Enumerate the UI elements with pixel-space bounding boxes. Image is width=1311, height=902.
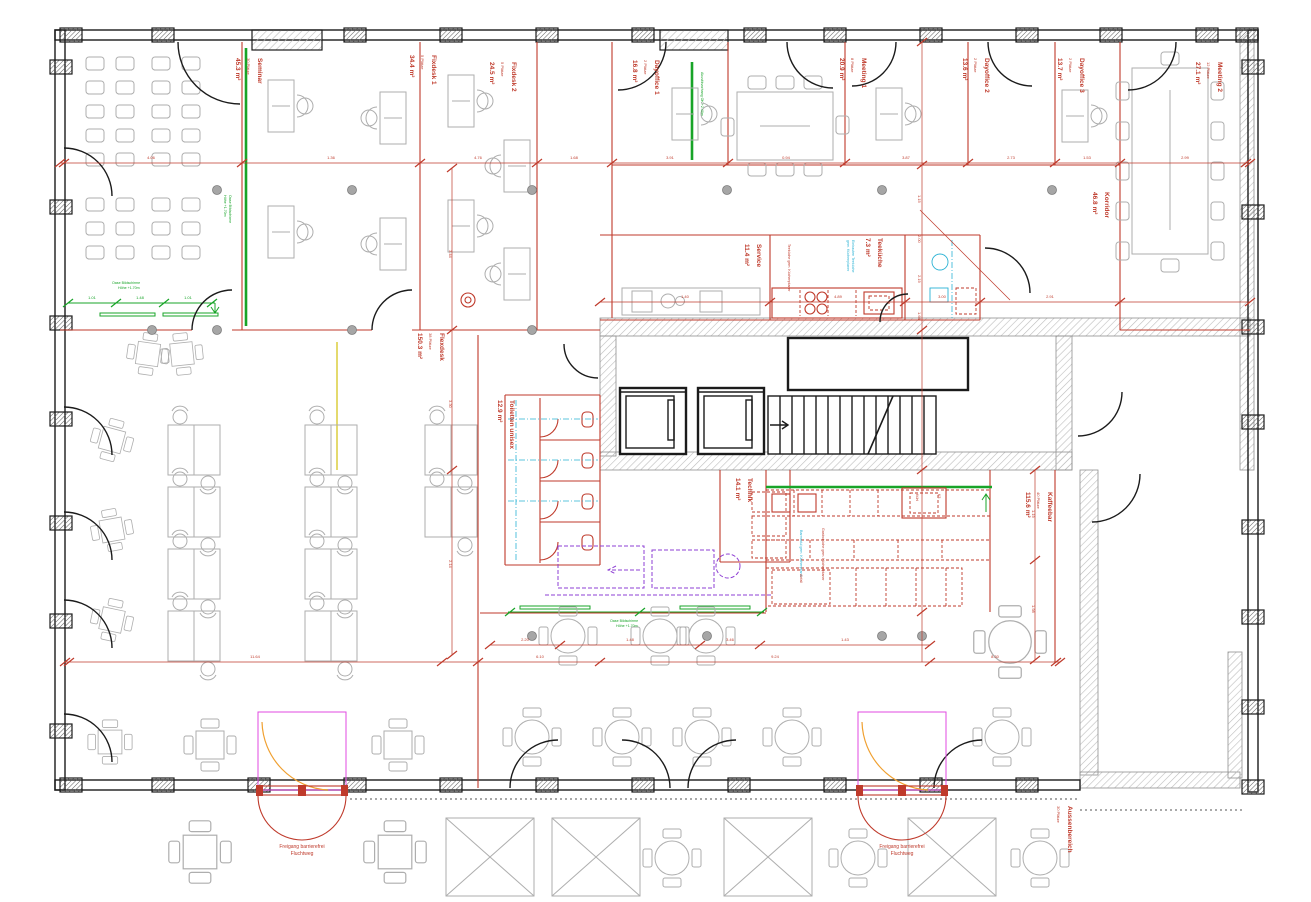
dim: 1.19 xyxy=(1031,510,1036,519)
room-area-dayoffice1: 16.8 m² xyxy=(631,60,638,83)
elevator-1 xyxy=(620,388,686,454)
core xyxy=(620,338,968,454)
room-label-technik: Technik xyxy=(746,478,753,502)
room-capacity-seminar: 30 Plätze xyxy=(246,58,251,75)
outdoor-furniture xyxy=(169,818,1069,896)
room-label-teekueche: Teeküche xyxy=(876,238,883,268)
room-label-fixdesk1: Fixdesk 1 xyxy=(430,55,437,85)
dim: 3.46 xyxy=(726,637,735,642)
room-area-kaffeebar: 115.6 m² xyxy=(1024,492,1031,518)
stairs xyxy=(768,396,936,454)
room-capacity-dayoffice2: 2 Plätze xyxy=(973,58,978,73)
exit-label-line1: Freigang barrierefrei xyxy=(879,844,924,850)
dim: 3.91 xyxy=(666,155,675,160)
room-area-fixdesk2: 24.5 m² xyxy=(488,62,495,85)
dim: 0.94 xyxy=(782,155,791,160)
room-capacity-dayoffice1: 2 Plätze xyxy=(643,60,648,75)
annotation-tk-cyan-1: Einbauten Teeküche xyxy=(851,240,855,273)
floor-plan: Freigang barrierefrei Fluchtweg Freigang… xyxy=(0,0,1311,902)
dim-green: 1.01 xyxy=(88,295,97,300)
annotation-oase-screen-1: Oase Bildschirme xyxy=(112,281,140,285)
room-label-fixdesk2: Fixdesk 2 xyxy=(510,62,517,92)
pilaster xyxy=(252,30,322,50)
room-area-service: 11.4 m² xyxy=(743,244,750,267)
room-area-technik: 14.1 m² xyxy=(734,478,741,501)
dim: 1.66 xyxy=(917,312,922,321)
dim: 1.40 xyxy=(681,294,690,299)
toilets xyxy=(505,395,600,565)
exit-label-line2: Fluchtweg xyxy=(291,851,314,857)
room-capacity-meeting2: 12 Plätze xyxy=(1206,62,1211,79)
dim: 1.98 xyxy=(1031,605,1036,614)
room-capacity-fixdesk2: 5 Plätze xyxy=(500,62,505,77)
dim: 4.76 xyxy=(474,155,483,160)
annotation-oase-mid-1: Oase Bildschirme xyxy=(610,619,638,623)
dim: 2.99 xyxy=(1181,155,1190,160)
door-swings xyxy=(64,42,1311,788)
dim: 3.44 xyxy=(448,250,453,259)
counter-label-kuehl: Kühl xyxy=(915,494,919,501)
annotation-oase-left-1: Oase Bildschirme xyxy=(228,195,232,223)
flex-side-tables xyxy=(87,331,205,645)
purple-overlay xyxy=(545,546,772,595)
room-capacity-flexdesk: 38 Plätze xyxy=(428,333,433,350)
technik-racks xyxy=(752,492,786,558)
room-label-dayoffice1: Dayoffice 1 xyxy=(653,60,660,95)
room-label-meeting1: Meeting 1 xyxy=(860,58,867,88)
dim: 1.68 xyxy=(570,155,579,160)
dim: 2.20 xyxy=(521,637,530,642)
annotation-bar-note: Gastroküche gem. Küchenplaner xyxy=(821,528,825,581)
room-label-service: Service xyxy=(755,244,762,268)
exit-label-line2: Fluchtweg xyxy=(891,851,914,857)
fixdesk1-workstations xyxy=(268,80,406,270)
annotation-bar-cyan: Barmodul gem. Küchenplaner xyxy=(799,530,803,578)
dim: 8.30 xyxy=(991,654,1000,659)
dim: 1.48 xyxy=(626,637,635,642)
room-area-fixdesk1: 34.4 m² xyxy=(408,55,415,78)
dim: 3.87 xyxy=(902,155,911,160)
dim: 1.36 xyxy=(327,155,336,160)
room-area-dayoffice3: 13.7 m² xyxy=(1056,58,1063,81)
room-label-meeting2: Meeting 2 xyxy=(1216,62,1223,92)
dim: 2.14 xyxy=(448,560,453,569)
annotation-tk-cyan-2: gem. Küchenplaner xyxy=(846,240,850,272)
pilaster xyxy=(660,30,728,50)
room-label-seminar: Seminar xyxy=(256,58,263,84)
room-area-toiletten: 12.9 m² xyxy=(496,400,503,423)
dimension-lines xyxy=(55,38,1255,666)
room-label-dayoffice3: Dayoffice 3 xyxy=(1078,58,1085,93)
annotation-oase-left-2: Höhe +1.70m xyxy=(223,195,227,217)
room-area-meeting2: 27.1 m² xyxy=(1194,62,1201,85)
room-capacity-fixdesk1: 5 Plätze xyxy=(420,55,425,70)
room-area-flexdesk: 150.3 m² xyxy=(416,333,423,360)
dim: 2.00 xyxy=(917,235,922,244)
dim: 6.10 xyxy=(536,654,545,659)
room-capacity-dayoffice3: 2 Plätze xyxy=(1068,58,1073,73)
dim: 3.00 xyxy=(938,294,947,299)
stair-landing xyxy=(788,338,968,390)
seminar-chairs xyxy=(86,57,200,259)
small-annotations: Oase Bildschirme Höhe +1.70m Oase Bildsc… xyxy=(112,72,941,628)
floor-plan-sheet: Freigang barrierefrei Fluchtweg Freigang… xyxy=(0,0,1311,902)
tea-kitchen-counter xyxy=(772,288,902,318)
dim: 2.19 xyxy=(917,275,922,284)
lounge-tables xyxy=(88,719,424,771)
annotation-oase-mid-2: Höhe +1.70m xyxy=(616,624,638,628)
room-area-korridor: 46.8 m² xyxy=(1091,192,1098,215)
counter-label-abfall: Abfall xyxy=(799,574,803,583)
dim: 2.73 xyxy=(1007,155,1016,160)
meeting1-table xyxy=(721,76,849,176)
wc-service-room xyxy=(930,240,976,318)
dim: 1.15 xyxy=(917,195,922,204)
annotation-kitchen-note: Teeküche gem. Küchenplaner xyxy=(787,244,791,292)
dim-green: 1.48 xyxy=(136,295,145,300)
fixdesk2-workstations xyxy=(448,75,530,300)
service-counter xyxy=(622,288,760,315)
room-area-teekueche: 7.3 m² xyxy=(864,238,871,258)
room-capacity-kaffeebar: 40 Plätze xyxy=(1036,492,1041,509)
room-label-korridor: Korridor xyxy=(1103,192,1110,218)
room-label-kaffeebar: Kaffeebar xyxy=(1046,492,1053,522)
exit-label-line1: Freigang barrierefrei xyxy=(279,844,324,850)
room-area-meeting1: 20.9 m² xyxy=(838,58,845,81)
dim: 4.06 xyxy=(147,155,156,160)
room-label-toiletten: Toiletten unisex xyxy=(508,400,515,449)
counter-label-k3: K3 xyxy=(937,494,941,498)
meeting2-table xyxy=(1116,52,1224,272)
dim: 2.91 xyxy=(1046,294,1055,299)
cafe-round-tables xyxy=(503,606,1046,766)
flexdesk-clusters xyxy=(168,406,477,680)
dim: 11.64 xyxy=(250,654,260,659)
room-capacity-meeting1: 8 Plätze xyxy=(850,58,855,73)
room-area-seminar: 45.3 m² xyxy=(234,58,241,81)
dim: 1.53 xyxy=(1083,155,1092,160)
room-label-dayoffice2: Dayoffice 2 xyxy=(983,58,990,93)
dim: 4.89 xyxy=(834,294,843,299)
room-label-flexdesk: Flexdesk xyxy=(438,333,445,361)
room-capacity-aussenbereich: 30 Plätze xyxy=(1056,806,1061,823)
dim: 1.43 xyxy=(841,637,850,642)
dim: 9.24 xyxy=(771,654,780,659)
elevator-2 xyxy=(698,388,764,454)
annotation-curtain: Akustikvorhang OK +2.40m xyxy=(700,72,704,116)
room-area-dayoffice2: 13.6 m² xyxy=(961,58,968,81)
annotation-oase-screen-2: Höhe +1.70m xyxy=(118,286,140,290)
dim-green: 1.01 xyxy=(184,295,193,300)
dim: 3.30 xyxy=(448,400,453,409)
room-label-aussenbereich: Aussenbereich xyxy=(1066,806,1073,853)
